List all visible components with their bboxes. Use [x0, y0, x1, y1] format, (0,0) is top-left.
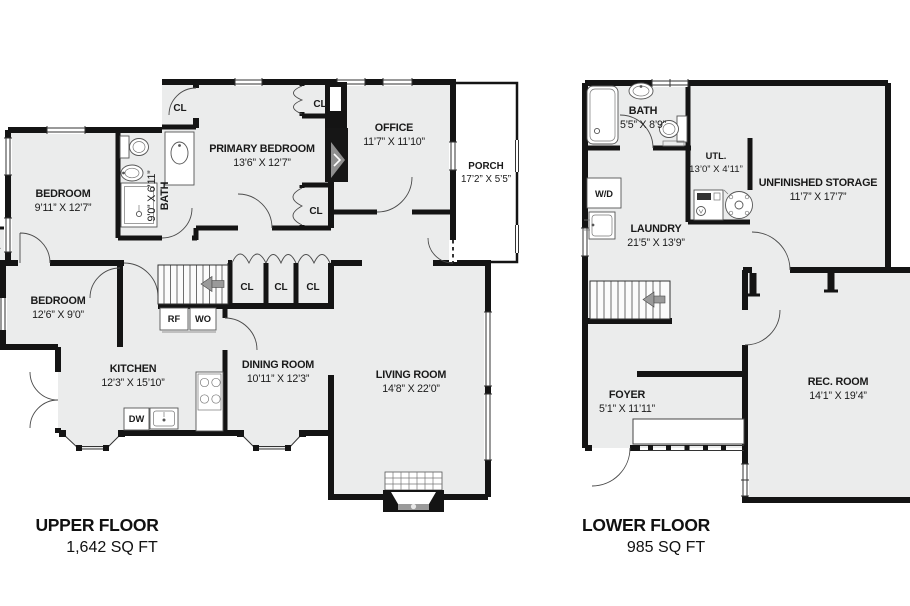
room-label-office: OFFICE	[375, 122, 413, 134]
room-label-utility: UTL.	[706, 151, 727, 161]
room-label-kitchen: KITCHEN	[110, 363, 157, 375]
wall-oven-label: WO	[195, 314, 211, 324]
room-label-lower-bath: BATH	[629, 105, 658, 117]
closet-label: CL	[309, 206, 322, 217]
upper-floor-title: UPPER FLOOR	[35, 515, 159, 535]
upper-floor-plan: BEDROOM 9’11” X 12’7” BEDROOM 12’6” X 9’…	[0, 78, 520, 512]
fireplace	[383, 472, 444, 512]
laundry-sink-icon	[584, 212, 615, 239]
lower-floor-area-label: 985 SQ FT	[627, 539, 705, 556]
lower-floor-title: LOWER FLOOR	[582, 515, 711, 535]
svg-text:21’5” X 13’9”: 21’5” X 13’9”	[627, 237, 685, 249]
floor-plan-image: BEDROOM 9’11” X 12’7” BEDROOM 12’6” X 9’…	[0, 0, 910, 606]
closet-label: CL	[306, 282, 319, 293]
closet-label: CL	[313, 99, 326, 110]
utility-fixtures	[694, 190, 753, 220]
closet-label-clipped: CL	[0, 241, 1, 252]
svg-text:14’8” X 22’0”: 14’8” X 22’0”	[382, 383, 440, 395]
closet-label: CL	[240, 282, 253, 293]
closet-label: CL	[173, 103, 186, 114]
svg-text:13’6” X 12’7”: 13’6” X 12’7”	[233, 157, 291, 169]
vanity-sink-icon	[165, 132, 194, 185]
dishwasher-label: DW	[129, 414, 145, 424]
svg-text:9’11” X 12’7”: 9’11” X 12’7”	[35, 202, 92, 214]
svg-text:13’0” X 4’11”: 13’0” X 4’11”	[689, 164, 743, 175]
room-label-dining-room: DINING ROOM	[242, 359, 314, 371]
water-heater-icon	[694, 190, 723, 220]
room-label-living-room: LIVING ROOM	[376, 369, 447, 381]
svg-text:10’11” X 12’3”: 10’11” X 12’3”	[247, 373, 310, 385]
room-label-laundry: LAUNDRY	[631, 223, 683, 235]
floor-titles: UPPER FLOOR 1,642 SQ FT LOWER FLOOR 985 …	[35, 515, 710, 556]
room-label-porch: PORCH	[468, 161, 503, 172]
svg-text:17’2” X 5’5”: 17’2” X 5’5”	[461, 174, 511, 185]
room-label-rec-room: REC. ROOM	[808, 376, 869, 388]
room-label-bedroom-top: BEDROOM	[36, 188, 91, 200]
refrigerator-label: RF	[168, 314, 181, 324]
svg-text:5’1” X 11’11”: 5’1” X 11’11”	[599, 403, 656, 415]
svg-text:9’0” X 6’11”: 9’0” X 6’11”	[146, 170, 158, 222]
bath-sink-icon	[629, 83, 653, 99]
room-label-primary-bedroom: PRIMARY BEDROOM	[209, 143, 315, 155]
stairs-down	[590, 281, 670, 319]
washer-dryer-label: W/D	[595, 189, 613, 199]
upper-floor-area-label: 1,642 SQ FT	[66, 539, 158, 556]
lower-floor-plan: BATH 5’5” X 8’9” UTL. 13’0” X 4’11” UNFI…	[581, 79, 910, 503]
porch-outline	[453, 83, 517, 262]
chimney	[325, 82, 348, 182]
room-label-unfinished-storage: UNFINISHED STORAGE	[759, 177, 878, 189]
closet-label: CL	[274, 282, 287, 293]
bath-sink-icon	[121, 165, 143, 181]
foyer-bench	[633, 419, 744, 451]
svg-text:12’3” X 15’10”: 12’3” X 15’10”	[101, 377, 165, 389]
svg-text:11’7” X 11’10”: 11’7” X 11’10”	[363, 136, 425, 148]
room-label-bath: BATH	[159, 181, 171, 210]
kitchen-sink-icon	[150, 408, 178, 429]
bathtub-icon	[587, 86, 618, 144]
svg-text:12’6” X 9’0”: 12’6” X 9’0”	[32, 309, 84, 321]
svg-text:5’5” X 8’9”: 5’5” X 8’9”	[620, 119, 667, 131]
room-label-foyer: FOYER	[609, 389, 646, 401]
room-label-bedroom-bottom: BEDROOM	[31, 295, 86, 307]
svg-text:11’7” X 17’7”: 11’7” X 17’7”	[790, 191, 847, 203]
porch-door	[449, 240, 457, 262]
svg-text:14’1” X 19’4”: 14’1” X 19’4”	[809, 390, 867, 402]
stove-icon	[196, 372, 223, 431]
stairs-up	[158, 265, 228, 304]
